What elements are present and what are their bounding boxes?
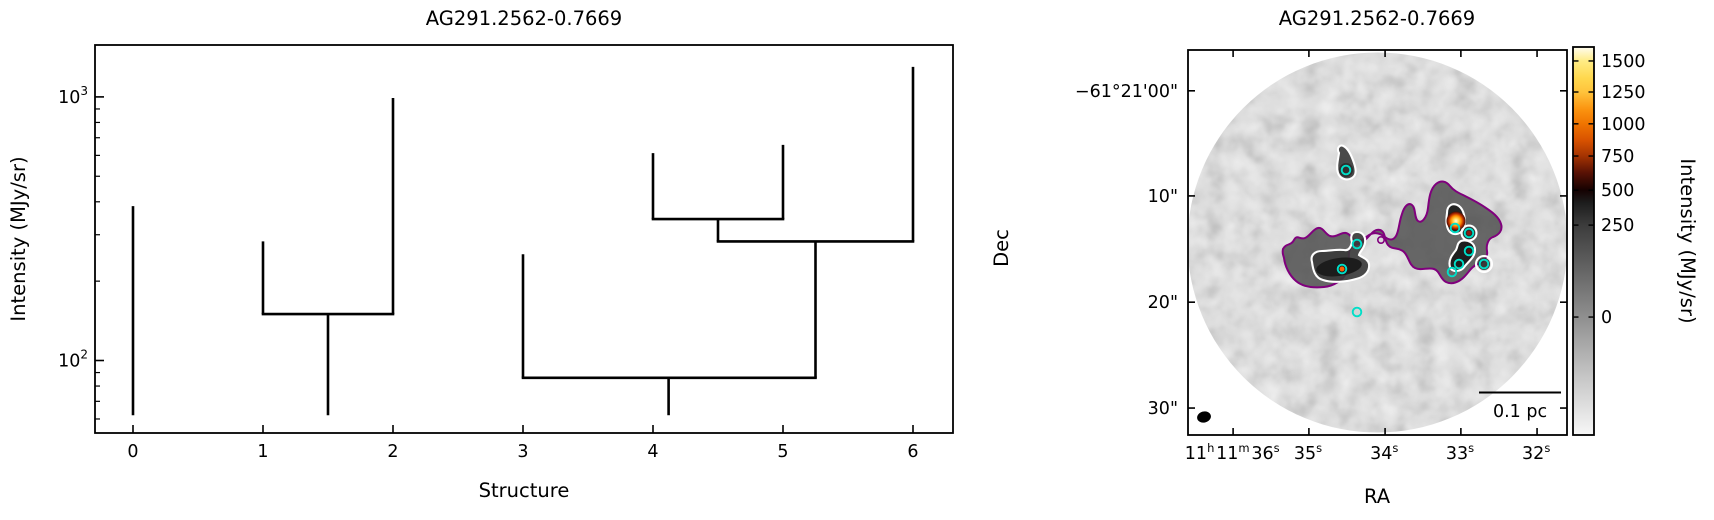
source-peak-dot [1467, 249, 1471, 253]
x-tick-label: 0 [127, 442, 138, 462]
x-tick-label: 5 [777, 442, 788, 462]
ra-tick-label: 33s [1446, 441, 1476, 464]
dec-tick-label: 20" [1148, 293, 1178, 313]
dec-tick-label: 30" [1148, 399, 1178, 419]
y-tick-label: 102 [58, 348, 88, 372]
dendrogram-title: AG291.2562-0.7669 [426, 7, 622, 30]
sky-panel: AG291.2562-0.7669 Dec RA 0.1 pc 11h 11m … [990, 7, 1699, 508]
dec-tick-label: 10" [1148, 187, 1178, 207]
sky-title: AG291.2562-0.7669 [1279, 7, 1475, 30]
colorbar-label: Intensity (MJy/sr) [1676, 158, 1699, 323]
source-peak-dot [1340, 267, 1345, 272]
bright-source [1447, 212, 1466, 231]
dendrogram-xlabel: Structure [479, 479, 570, 502]
sky-ylabel: Dec [990, 229, 1013, 267]
ra-tick-label: 11h 11m 36s [1185, 441, 1282, 464]
colorbar: 1500125010007505002500 Intensity (MJy/sr… [1573, 47, 1699, 435]
dendrogram-ylabel: Intensity (MJy/sr) [7, 156, 30, 321]
sky-xlabel: RA [1364, 485, 1391, 508]
dendrogram-axes-ticks: 0123456102103 [58, 84, 918, 462]
colorbar-tick-label: 1000 [1601, 115, 1646, 135]
figure-canvas: AG291.2562-0.7669 Intensity (MJy/sr) Str… [0, 0, 1714, 520]
colorbar-tick-label: 500 [1601, 181, 1634, 201]
x-tick-label: 3 [517, 442, 528, 462]
colorbar-tick-label: 0 [1601, 308, 1612, 328]
colorbar-tick-label: 750 [1601, 147, 1634, 167]
ra-tick-label: 34s [1370, 441, 1400, 464]
beam-ellipse [1196, 410, 1212, 424]
colorbar-gradient [1573, 47, 1594, 435]
sky-field [1180, 42, 1580, 442]
ra-tick-label: 32s [1522, 441, 1552, 464]
figure: AG291.2562-0.7669 Intensity (MJy/sr) Str… [0, 0, 1714, 520]
ra-tick-label: 35s [1294, 441, 1324, 464]
dendrogram-panel: AG291.2562-0.7669 Intensity (MJy/sr) Str… [7, 7, 953, 502]
x-tick-label: 4 [647, 442, 658, 462]
x-tick-label: 1 [257, 442, 268, 462]
x-tick-label: 6 [907, 442, 918, 462]
x-tick-label: 2 [387, 442, 398, 462]
source-peak-dot [1467, 231, 1472, 236]
y-tick-label: 103 [58, 84, 88, 108]
scalebar-label: 0.1 pc [1493, 402, 1547, 422]
dendrogram-tree [133, 67, 914, 415]
colorbar-tick-label: 1250 [1601, 83, 1646, 103]
dec-tick-label: −61°21'00" [1075, 82, 1178, 102]
colorbar-tick-label: 1500 [1601, 52, 1646, 72]
sky-noise-map [1180, 42, 1580, 442]
colorbar-tick-label: 250 [1601, 216, 1634, 236]
